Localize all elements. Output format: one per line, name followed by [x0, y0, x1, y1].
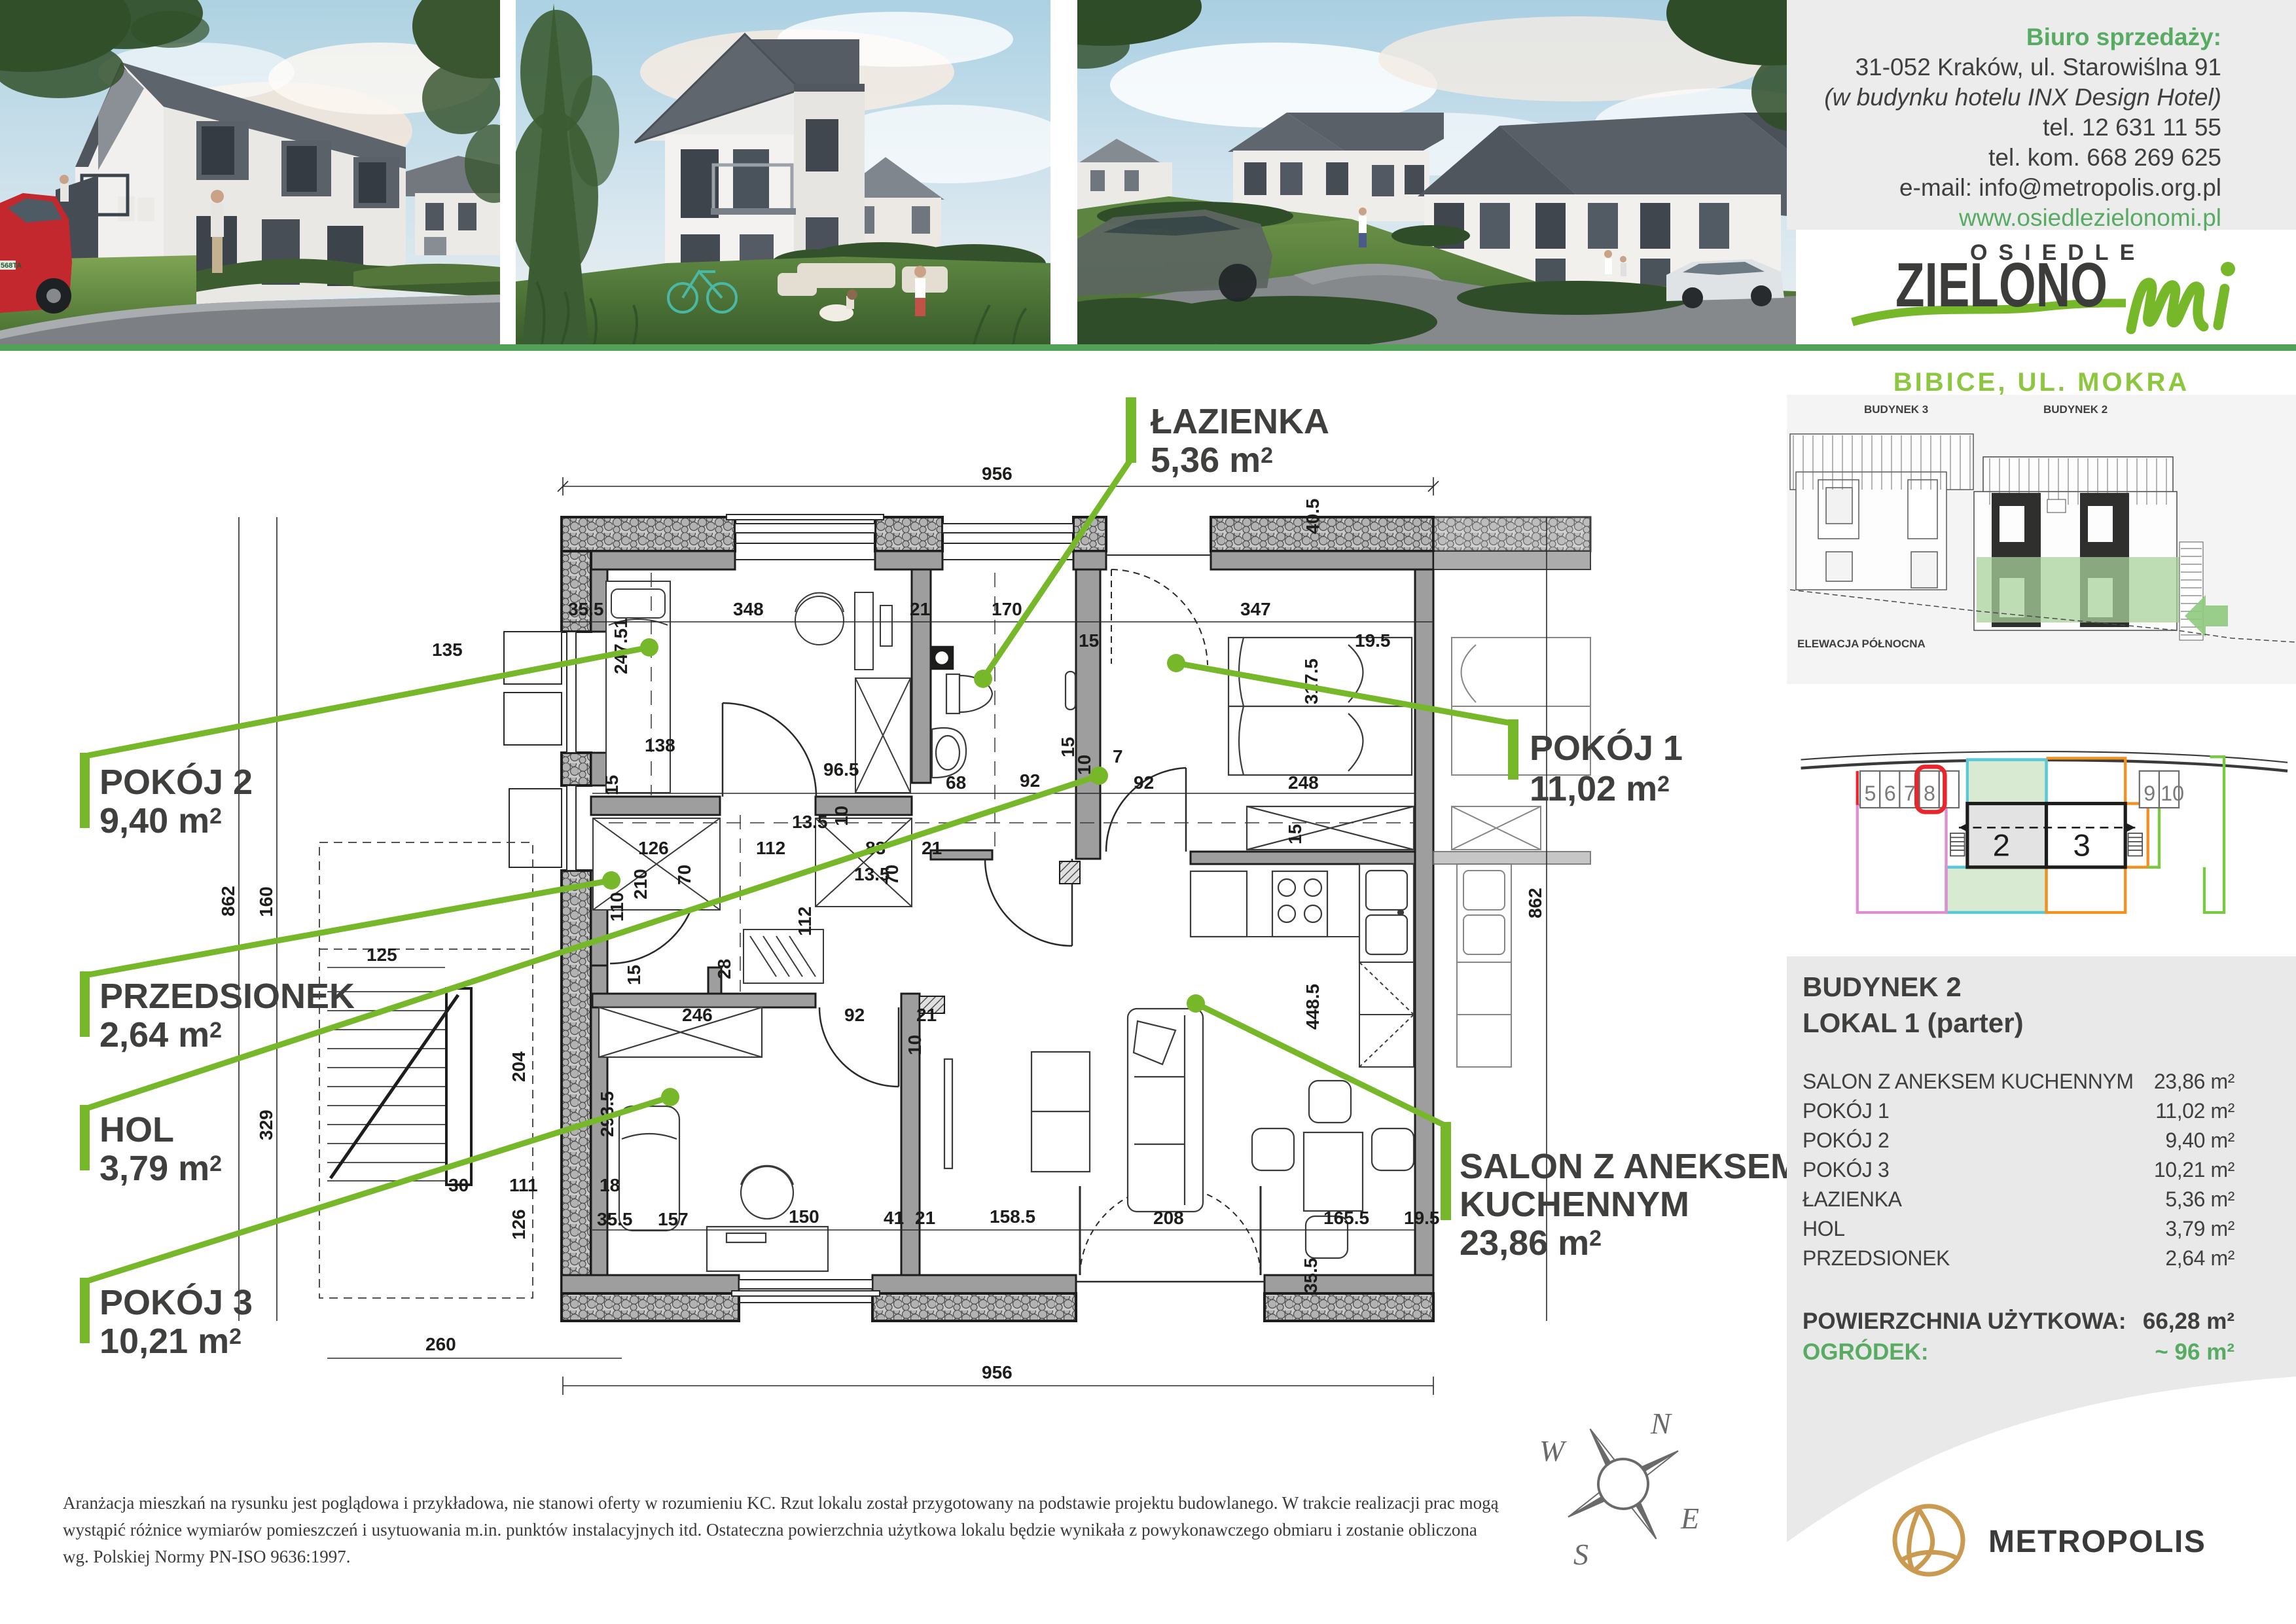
svg-text:10: 10 [905, 1035, 925, 1055]
svg-text:158.5: 158.5 [990, 1206, 1035, 1227]
svg-text:5,36 m2: 5,36 m2 [1151, 441, 1273, 480]
svg-text:13.5: 13.5 [792, 812, 828, 832]
svg-text:9,40 m2: 9,40 m2 [99, 801, 222, 840]
svg-text:329: 329 [256, 1110, 276, 1140]
svg-text:347: 347 [1240, 599, 1271, 619]
svg-text:208: 208 [1153, 1208, 1184, 1228]
svg-text:92: 92 [1020, 770, 1040, 791]
svg-text:7: 7 [1904, 782, 1916, 805]
svg-text:15: 15 [624, 965, 644, 985]
svg-text:30: 30 [448, 1175, 469, 1195]
svg-text:ZIELONO: ZIELONO [1895, 250, 2108, 320]
svg-text:19.5: 19.5 [1404, 1208, 1440, 1228]
svg-text:96.5: 96.5 [823, 759, 859, 780]
svg-text:3,79 m2: 3,79 m2 [99, 1149, 222, 1188]
svg-text:862: 862 [1525, 888, 1545, 918]
svg-text:68: 68 [946, 772, 966, 793]
svg-text:126: 126 [638, 838, 669, 858]
svg-text:21: 21 [915, 1208, 935, 1228]
svg-text:28: 28 [714, 959, 734, 979]
svg-text:956: 956 [982, 1362, 1013, 1382]
svg-text:ŁAZIENKA: ŁAZIENKA [1151, 402, 1329, 441]
svg-text:70: 70 [882, 865, 902, 885]
svg-text:35.5: 35.5 [1300, 1258, 1321, 1294]
svg-text:HOL: HOL [99, 1110, 174, 1149]
svg-text:3: 3 [2073, 828, 2090, 863]
svg-text:448.5: 448.5 [1302, 984, 1323, 1030]
svg-text:862: 862 [218, 886, 238, 916]
svg-text:126: 126 [509, 1209, 529, 1240]
svg-text:15: 15 [601, 775, 622, 795]
svg-text:150: 150 [789, 1206, 819, 1227]
svg-text:8: 8 [1924, 782, 1935, 805]
svg-text:KUCHENNYM: KUCHENNYM [1460, 1185, 1689, 1224]
svg-text:260: 260 [425, 1334, 456, 1354]
svg-text:15: 15 [1285, 824, 1305, 844]
svg-text:35.5: 35.5 [568, 599, 604, 619]
svg-text:41: 41 [884, 1208, 904, 1228]
svg-text:170: 170 [992, 599, 1022, 619]
svg-text:10: 10 [831, 806, 852, 826]
svg-text:160: 160 [256, 886, 276, 917]
svg-text:S: S [1573, 1538, 1588, 1571]
svg-text:7: 7 [1113, 746, 1123, 767]
svg-text:PRZEDSIONEK: PRZEDSIONEK [99, 977, 355, 1016]
svg-text:23,86 m2: 23,86 m2 [1460, 1223, 1602, 1263]
svg-text:135: 135 [432, 640, 463, 660]
svg-text:11,02 m2: 11,02 m2 [1530, 769, 1670, 808]
svg-text:2,64 m2: 2,64 m2 [99, 1015, 222, 1055]
svg-text:POKÓJ 3: POKÓJ 3 [99, 1283, 253, 1322]
svg-text:POKÓJ 2: POKÓJ 2 [99, 763, 253, 802]
svg-text:N: N [1650, 1407, 1672, 1440]
svg-text:ELEWACJA PÓŁNOCNA: ELEWACJA PÓŁNOCNA [1797, 638, 1926, 650]
svg-text:210: 210 [630, 869, 651, 899]
svg-text:21: 21 [916, 1005, 937, 1025]
svg-text:9: 9 [2144, 782, 2155, 805]
svg-text:15: 15 [1079, 630, 1099, 651]
svg-text:248: 248 [1288, 772, 1319, 793]
svg-text:956: 956 [982, 463, 1013, 484]
svg-text:6: 6 [1884, 782, 1896, 805]
svg-text:W: W [1539, 1434, 1567, 1468]
svg-text:15: 15 [1058, 737, 1078, 757]
svg-text:165.5: 165.5 [1323, 1208, 1369, 1228]
svg-text:112: 112 [756, 838, 785, 858]
svg-text:19.5: 19.5 [1355, 630, 1391, 651]
svg-text:246: 246 [682, 1005, 713, 1025]
svg-text:348: 348 [733, 599, 764, 619]
svg-text:18: 18 [600, 1175, 620, 1195]
svg-text:110: 110 [607, 892, 627, 922]
svg-text:5: 5 [1865, 782, 1876, 805]
svg-text:70: 70 [674, 865, 694, 885]
svg-text:21: 21 [910, 599, 930, 619]
svg-text:21: 21 [922, 838, 942, 858]
svg-text:92: 92 [1134, 772, 1154, 793]
svg-text:10,21 m2: 10,21 m2 [99, 1322, 242, 1361]
svg-text:247.51: 247.51 [611, 618, 631, 674]
svg-text:138: 138 [645, 735, 675, 755]
svg-text:35.5: 35.5 [597, 1209, 633, 1229]
svg-text:40.5: 40.5 [1302, 499, 1323, 535]
svg-text:2: 2 [1993, 828, 2010, 863]
svg-text:BUDYNEK 3: BUDYNEK 3 [1864, 403, 1928, 416]
svg-text:E: E [1680, 1502, 1699, 1535]
svg-text:92: 92 [844, 1005, 865, 1025]
svg-text:125: 125 [367, 945, 397, 965]
svg-text:568TA: 568TA [1, 262, 22, 270]
svg-text:POKÓJ 1: POKÓJ 1 [1530, 729, 1683, 768]
svg-text:SALON Z ANEKSEM: SALON Z ANEKSEM [1460, 1147, 1787, 1186]
svg-text:157: 157 [658, 1209, 689, 1229]
svg-text:317.5: 317.5 [1301, 659, 1321, 704]
svg-text:10: 10 [2161, 782, 2184, 805]
svg-text:204: 204 [509, 1051, 529, 1082]
svg-text:BUDYNEK 2: BUDYNEK 2 [2043, 403, 2108, 416]
svg-text:112: 112 [795, 907, 815, 936]
svg-text:METROPOLIS: METROPOLIS [1988, 1525, 2206, 1559]
svg-text:111: 111 [509, 1175, 538, 1195]
